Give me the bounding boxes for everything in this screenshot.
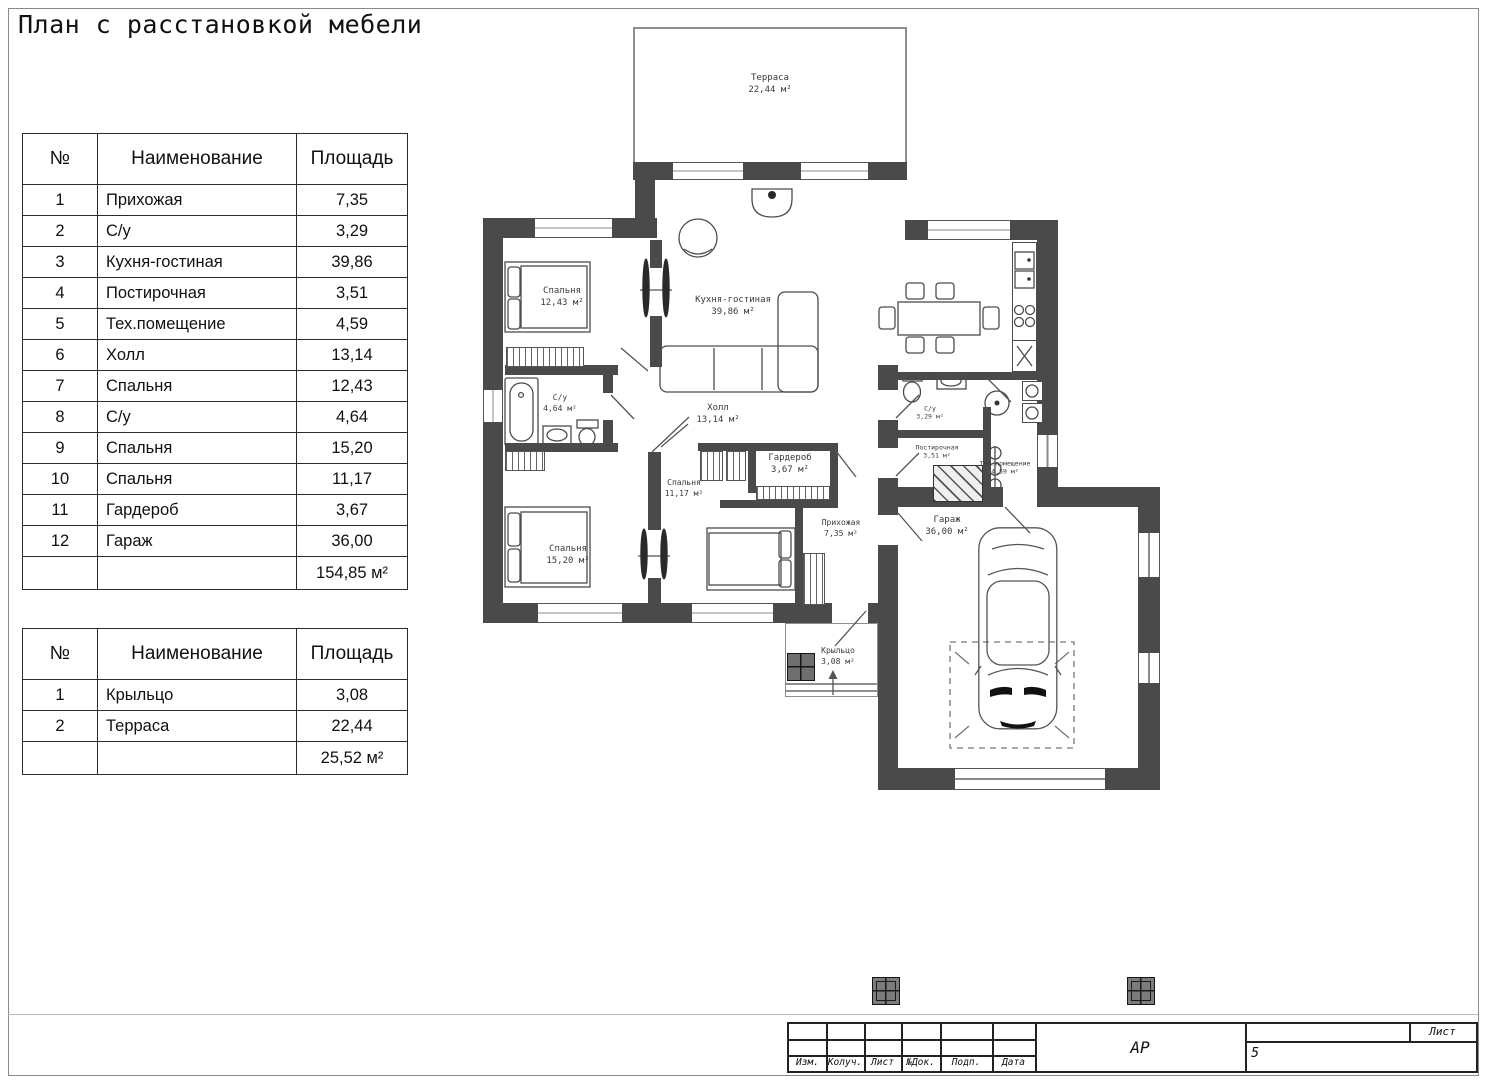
titleblock-col-data: Дата [992,1055,1035,1071]
sink [937,373,966,389]
column-marker [872,977,900,1005]
washer-drum-icon [1026,385,1038,397]
washer-drum-icon [1026,407,1038,419]
drawing-sheet: План с расстановкой мебели № Наименовани… [0,0,1486,1080]
room-label-kitchen: Кухня-гостиная39,86 м² [695,294,771,318]
dining-table [879,283,999,353]
swing-door-symbol [638,259,672,579]
armchair [679,219,717,257]
room-label-bedroom1: Спальня12,43 м² [540,285,583,309]
titleblock-sheet-number: 5 [1251,1045,1259,1061]
car [975,528,1061,729]
title-block: Изм. Колуч. Лист №Док. Подп. Дата АР Лис… [787,1022,1478,1073]
room-label-hall: Холл13,14 м² [696,402,739,426]
bathtub [505,378,538,446]
room-label-bath2: С/у3,29 м² [916,405,943,422]
kitchen-sink [1015,252,1034,288]
titleblock-col-dok: №Док. [901,1055,940,1071]
titleblock-col-list: Лист [864,1055,901,1071]
room-label-laundry: Постирочная3,51 м² [915,444,958,461]
titleblock-sheet-label: Лист [1409,1024,1476,1041]
room-label-garage: Гараж36,00 м² [925,514,968,538]
toilet [577,420,598,446]
room-label-entry: Прихожая7,35 м² [822,518,861,540]
separator-line [8,1014,1478,1015]
floor-plan: Терраса22,44 м² Спальня12,43 м² Кухня-го… [0,0,1486,1080]
cabinet-cross-icon [1017,346,1032,366]
sink [543,426,571,444]
room-label-bedroom2: Спальня11,17 м² [665,478,704,500]
titleblock-col-podp: Подп. [940,1055,992,1071]
room-label-bedroom3: Спальня15,20 м² [546,543,589,567]
stove [1015,306,1035,327]
room-label-bath1: С/у4,64 м² [543,393,577,415]
titleblock-code: АР [1035,1024,1245,1071]
bed [707,528,795,590]
boiler [985,391,1009,415]
room-label-porch: Крыльцо3,08 м² [821,646,855,668]
column-marker [1127,977,1155,1005]
fireplace [752,189,792,217]
plan-drawing-overlay [0,0,1486,1080]
room-label-wardrobe: Гардероб3,67 м² [768,452,811,476]
room-label-terrace: Терраса22,44 м² [748,72,791,96]
titleblock-col-koluch: Колуч. [826,1055,864,1071]
titleblock-col-izm: Изм. [789,1055,826,1071]
room-label-tech: Тех.помещение4,59 м² [980,460,1031,477]
toilet [903,373,922,402]
entry-arrow-icon [829,670,838,695]
